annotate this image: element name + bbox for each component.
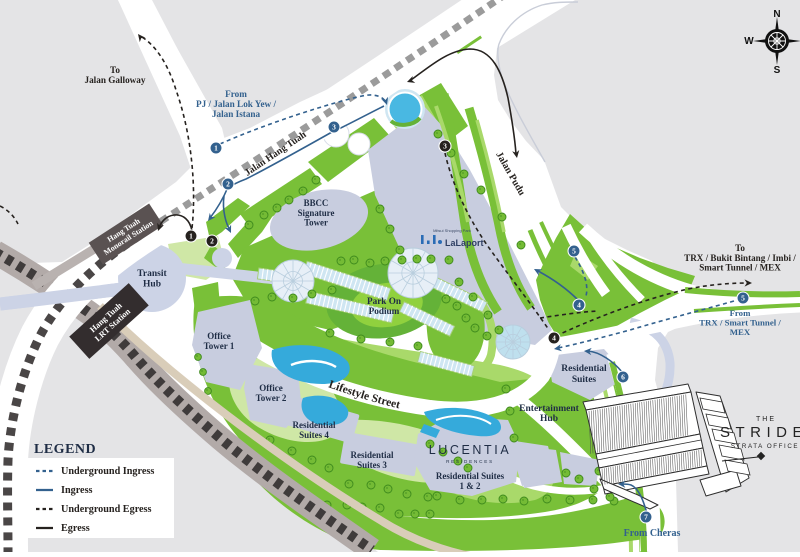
svg-text:STRATA OFFICE: STRATA OFFICE: [731, 443, 799, 450]
svg-text:Residential Suites: Residential Suites: [436, 471, 505, 481]
svg-text:From: From: [225, 89, 247, 99]
svg-text:STRIDE: STRIDE: [720, 424, 800, 441]
svg-text:To: To: [110, 65, 120, 75]
svg-text:5: 5: [741, 294, 745, 303]
svg-text:Jalan Istana: Jalan Istana: [212, 109, 261, 119]
svg-text:Ingress: Ingress: [61, 485, 93, 496]
svg-text:Entertainment: Entertainment: [519, 404, 579, 414]
svg-text:Park On: Park On: [367, 296, 401, 306]
svg-text:1: 1: [214, 144, 218, 153]
svg-text:THE: THE: [756, 416, 776, 423]
svg-text:Underground Egress: Underground Egress: [61, 504, 152, 515]
svg-text:Tower 2: Tower 2: [256, 393, 287, 403]
svg-text:LUCENTIA: LUCENTIA: [429, 443, 512, 457]
svg-text:From: From: [730, 308, 752, 318]
svg-text:Egress: Egress: [61, 523, 90, 534]
svg-text:5: 5: [572, 247, 576, 256]
svg-text:To: To: [735, 243, 745, 253]
svg-text:From Cheras: From Cheras: [624, 528, 681, 539]
svg-text:Podium: Podium: [369, 306, 400, 316]
svg-text:Suites 3: Suites 3: [357, 460, 387, 470]
svg-text:Underground Ingress: Underground Ingress: [61, 466, 154, 477]
svg-text:Office: Office: [207, 331, 230, 341]
svg-text:PJ / Jalan Lok Yew /: PJ / Jalan Lok Yew /: [196, 99, 277, 109]
svg-text:Hub: Hub: [540, 414, 558, 424]
svg-text:Residential: Residential: [350, 450, 394, 460]
svg-text:1: 1: [189, 232, 193, 241]
svg-text:Signature: Signature: [298, 208, 335, 218]
svg-text:LEGEND: LEGEND: [34, 442, 96, 457]
svg-text:3: 3: [332, 123, 336, 132]
svg-text:S: S: [774, 65, 781, 76]
svg-text:Jalan Galloway: Jalan Galloway: [84, 75, 145, 85]
svg-text:6: 6: [621, 373, 625, 382]
svg-text:W: W: [744, 36, 754, 47]
svg-text:Smart Tunnel / MEX: Smart Tunnel / MEX: [699, 263, 781, 273]
svg-text:Suites 4: Suites 4: [299, 430, 329, 440]
svg-text:Tower 1: Tower 1: [204, 341, 235, 351]
svg-text:Transit: Transit: [137, 269, 167, 279]
svg-text:Suites: Suites: [572, 375, 597, 385]
svg-text:MEX: MEX: [730, 327, 751, 337]
svg-text:Office: Office: [259, 383, 282, 393]
svg-text:4: 4: [577, 301, 581, 310]
svg-text:BBCC: BBCC: [304, 198, 329, 208]
svg-text:N: N: [773, 9, 780, 20]
svg-text:2: 2: [210, 237, 214, 246]
svg-text:4: 4: [552, 334, 556, 343]
svg-text:1 & 2: 1 & 2: [460, 481, 481, 491]
svg-text:TRX / Smart Tunnel /: TRX / Smart Tunnel /: [699, 318, 781, 328]
svg-text:Hub: Hub: [143, 280, 161, 290]
svg-text:7: 7: [644, 513, 648, 522]
svg-text:Tower: Tower: [304, 218, 328, 228]
svg-text:3: 3: [443, 142, 447, 151]
svg-text:2: 2: [226, 180, 230, 189]
svg-text:Residential: Residential: [292, 420, 336, 430]
svg-text:TRX / Bukit Bintang / Imbi /: TRX / Bukit Bintang / Imbi /: [684, 253, 796, 263]
svg-text:LaLaport: LaLaport: [445, 238, 484, 248]
svg-text:Mitsui Shopping Park: Mitsui Shopping Park: [433, 228, 471, 233]
svg-text:Residential: Residential: [561, 364, 607, 374]
svg-text:RESIDENCES: RESIDENCES: [446, 459, 494, 464]
